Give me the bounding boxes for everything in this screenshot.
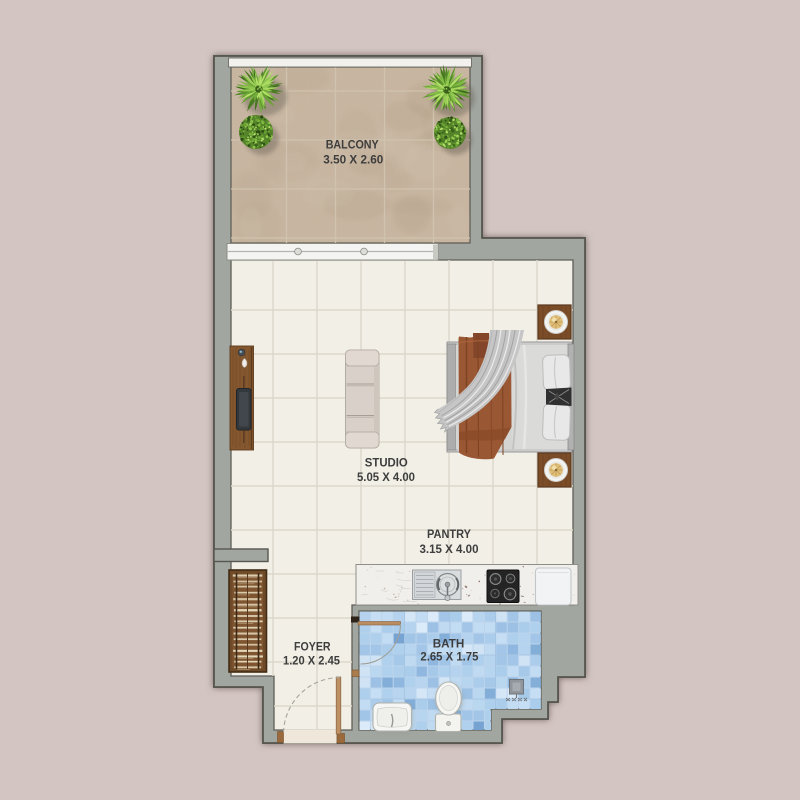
svg-text:3.15 X 4.00: 3.15 X 4.00 (420, 542, 479, 556)
svg-text:1.20 X 2.45: 1.20 X 2.45 (283, 654, 340, 668)
svg-text:5.05 X 4.00: 5.05 X 4.00 (357, 470, 415, 484)
svg-text:FOYER: FOYER (294, 639, 331, 653)
svg-text:BATH: BATH (433, 637, 465, 651)
svg-text:2.65 X 1.75: 2.65 X 1.75 (420, 650, 478, 664)
svg-text:STUDIO: STUDIO (365, 455, 408, 469)
svg-text:3.50 X 2.60: 3.50 X 2.60 (323, 152, 383, 166)
svg-text:PANTRY: PANTRY (427, 527, 471, 541)
svg-text:BALCONY: BALCONY (326, 138, 379, 152)
